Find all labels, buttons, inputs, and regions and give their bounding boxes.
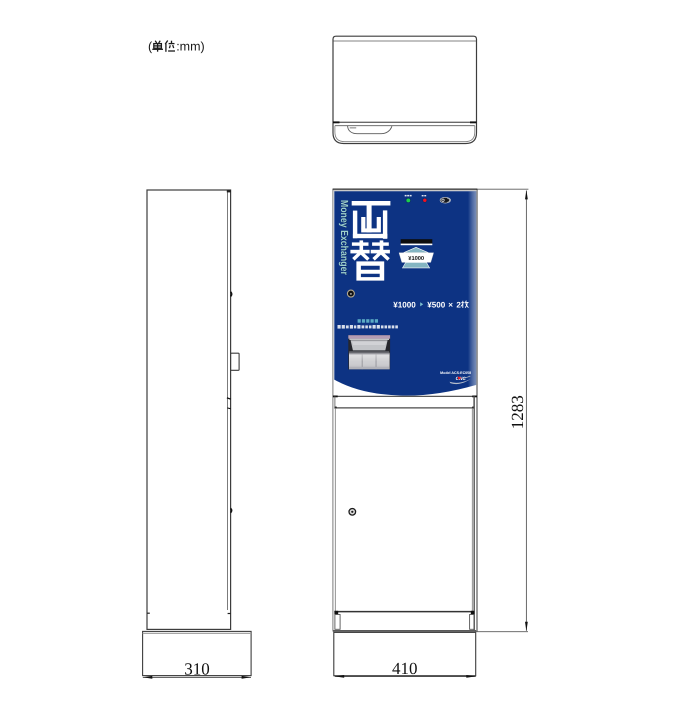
svg-text:¥1000: ¥1000: [408, 256, 424, 262]
svg-text:¥500: ¥500: [427, 301, 446, 310]
svg-text:1283: 1283: [508, 395, 527, 429]
svg-text:310: 310: [184, 660, 210, 679]
svg-text:×: ×: [448, 301, 453, 310]
svg-text:CNC: CNC: [456, 376, 467, 381]
svg-text:Money Exchanger: Money Exchanger: [338, 200, 349, 275]
svg-text:¥1000: ¥1000: [393, 301, 416, 310]
svg-text::mm): :mm): [176, 40, 204, 54]
svg-text:Model ACS-EC058: Model ACS-EC058: [440, 371, 471, 375]
svg-text:410: 410: [392, 659, 418, 678]
svg-text:2: 2: [456, 301, 461, 310]
